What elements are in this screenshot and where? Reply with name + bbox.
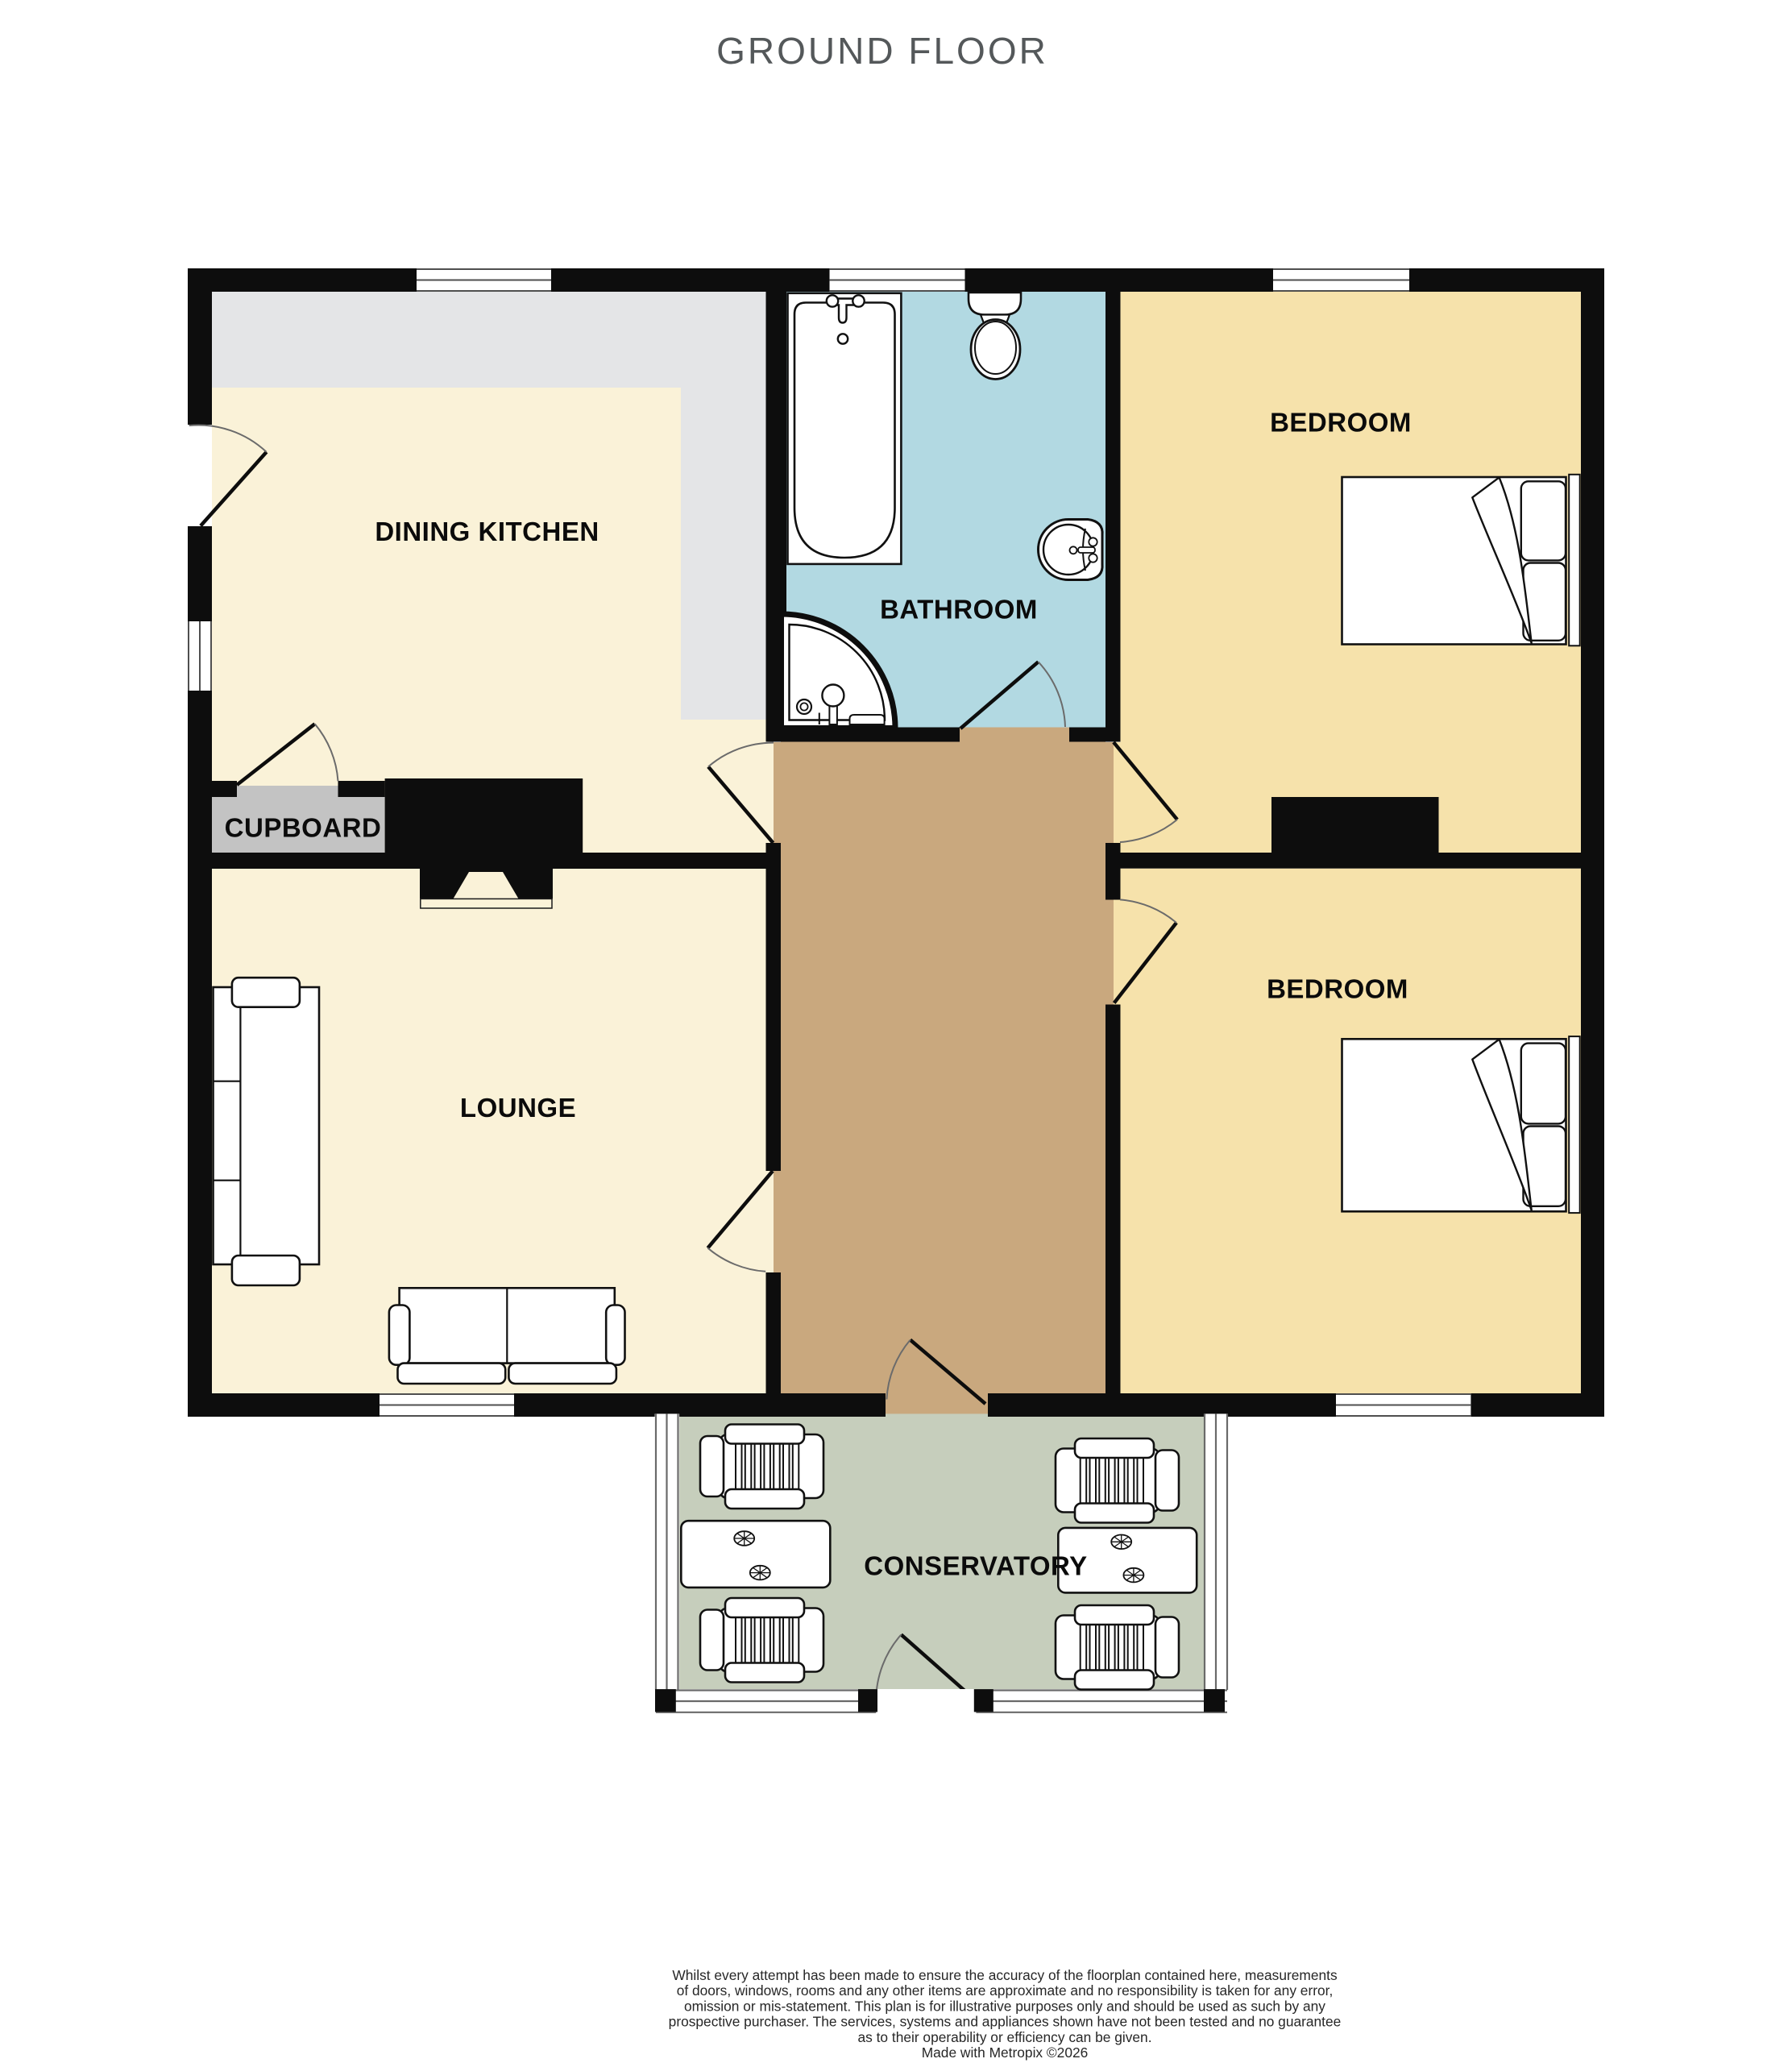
svg-text:BEDROOM: BEDROOM bbox=[1267, 974, 1408, 1004]
svg-text:Made with Metropix ©2026: Made with Metropix ©2026 bbox=[922, 2044, 1089, 2061]
svg-text:BATHROOM: BATHROOM bbox=[880, 595, 1038, 625]
svg-text:Whilst every attempt has been: Whilst every attempt has been made to en… bbox=[672, 1967, 1338, 1983]
svg-text:BEDROOM: BEDROOM bbox=[1270, 408, 1412, 438]
svg-text:of doors, windows, rooms and a: of doors, windows, rooms and any other i… bbox=[677, 1982, 1334, 1999]
svg-text:DINING KITCHEN: DINING KITCHEN bbox=[375, 517, 599, 546]
svg-text:CONSERVATORY: CONSERVATORY bbox=[864, 1551, 1087, 1581]
svg-text:GROUND FLOOR: GROUND FLOOR bbox=[716, 30, 1048, 72]
svg-text:CUPBOARD: CUPBOARD bbox=[225, 813, 382, 843]
svg-text:prospective purchaser. The ser: prospective purchaser. The services, sys… bbox=[669, 2014, 1342, 2030]
svg-text:omission or mis-statement. Thi: omission or mis-statement. This plan is … bbox=[684, 1998, 1325, 2014]
svg-text:LOUNGE: LOUNGE bbox=[460, 1093, 576, 1123]
svg-text:as to their operability or eff: as to their operability or efficiency ca… bbox=[857, 2029, 1151, 2045]
